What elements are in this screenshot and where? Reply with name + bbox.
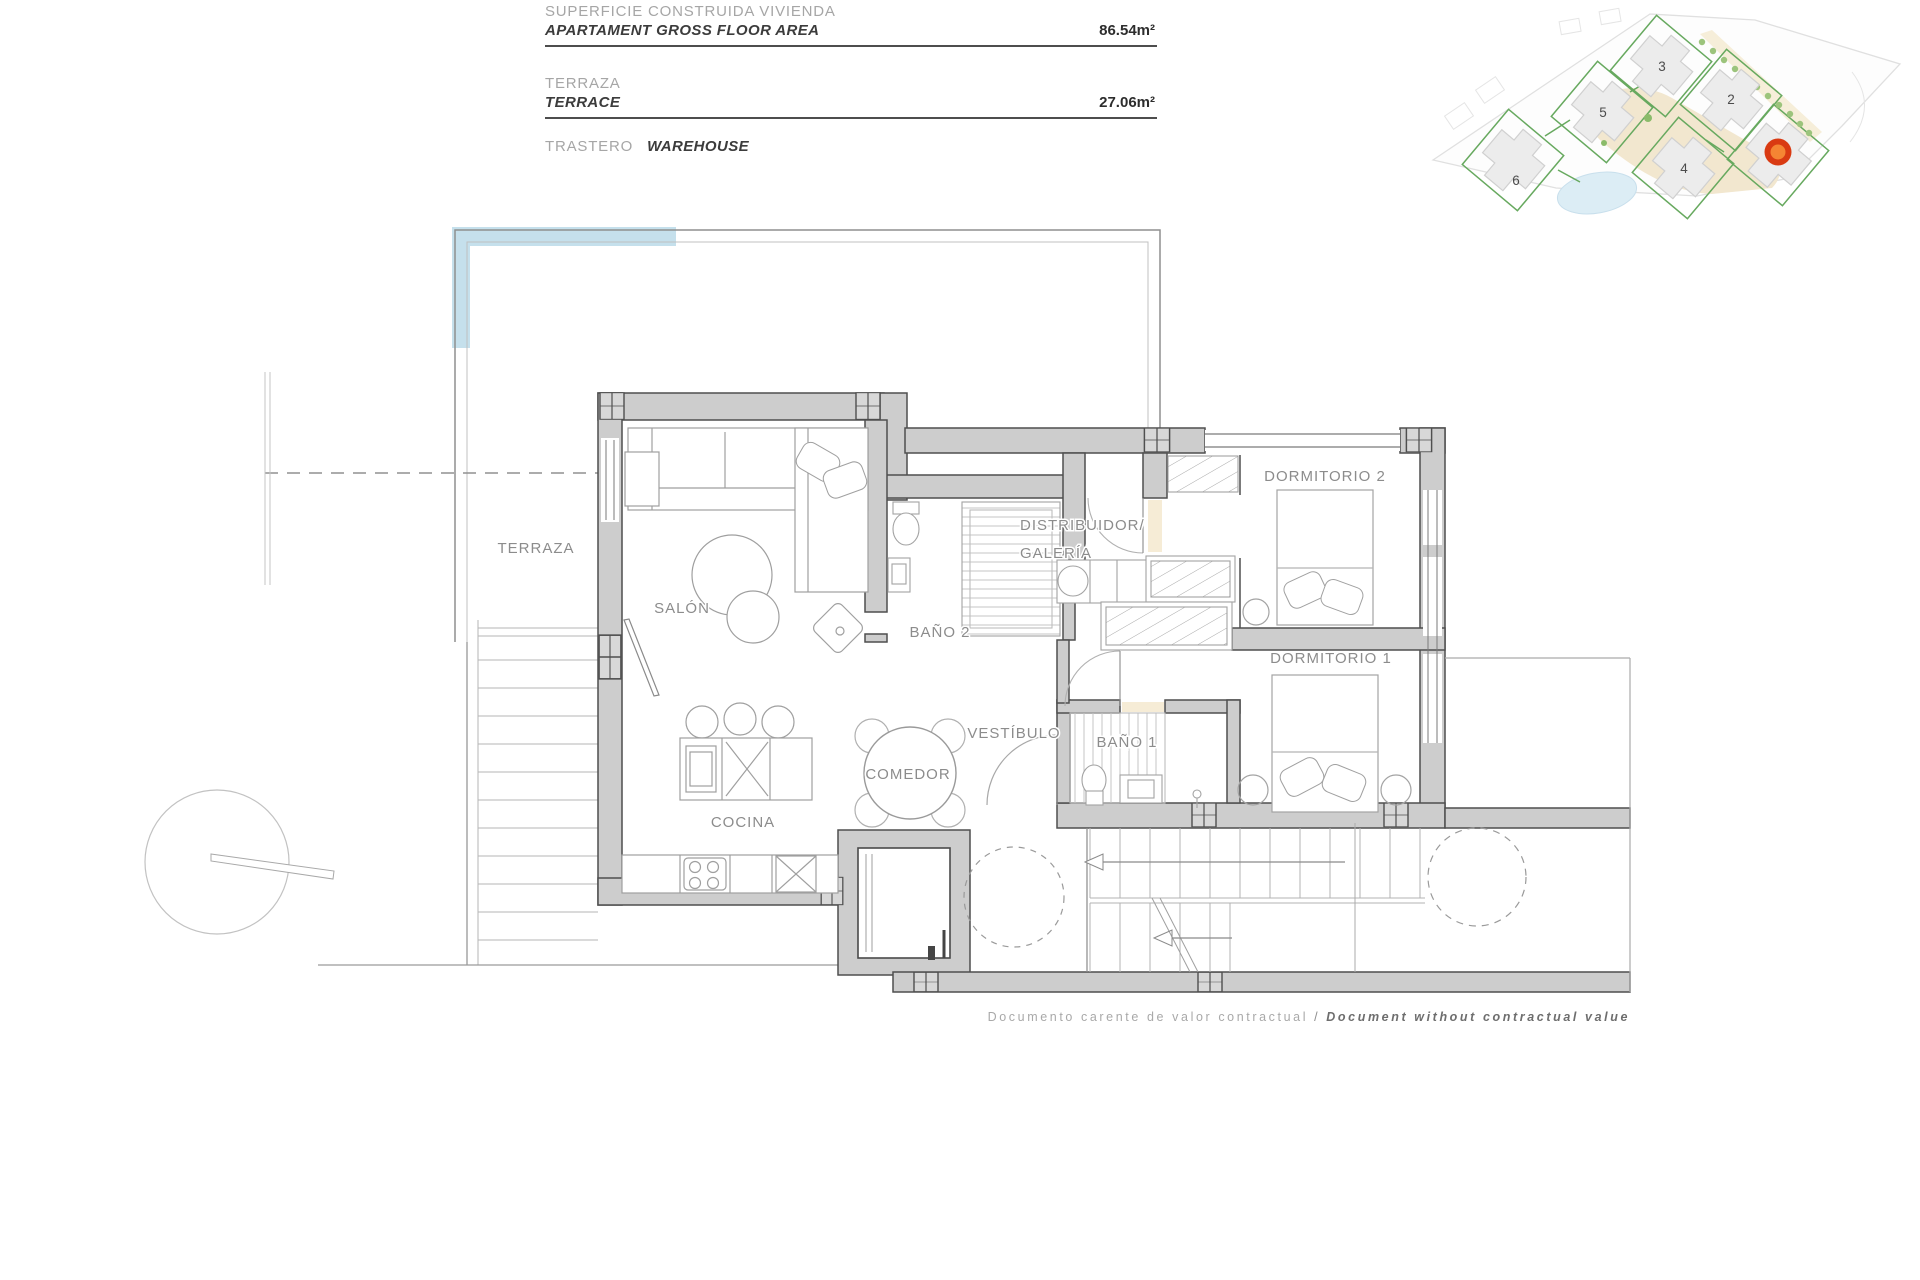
salon (624, 428, 869, 696)
exterior-stairs (467, 620, 598, 965)
plot-number-6: 6 (1512, 173, 1520, 188)
bathroom-1 (1065, 651, 1201, 808)
room-label-cocina: COCINA (711, 814, 775, 831)
room-label-dormitorio1: DORMITORIO 1 (1270, 650, 1392, 667)
floor-plan-page: SUPERFICIE CONSTRUIDA VIVIENDA APARTAMEN… (0, 0, 1920, 1280)
bedroom-1 (1238, 675, 1411, 812)
elevator (858, 848, 950, 960)
tree (145, 790, 334, 934)
plot-number-5: 5 (1599, 105, 1607, 120)
room-label-dormitorio2: DORMITORIO 2 (1264, 468, 1386, 485)
door-tint (1148, 500, 1162, 552)
room-label-terraza: TERRAZA (497, 540, 574, 557)
plot-number-4: 4 (1680, 161, 1688, 176)
terrace-blue-highlight (452, 227, 676, 348)
room-label-salon: SALÓN (654, 600, 710, 617)
door-tint (1122, 702, 1164, 712)
room-label-galeria: GALERÍA (1020, 545, 1092, 562)
plan-drawing: 6 5 3 2 4 TERRAZA (0, 0, 1920, 1280)
plot-number-2: 2 (1727, 92, 1735, 107)
vestibulo (964, 735, 1064, 947)
room-label-bano1: BAÑO 1 (1096, 734, 1157, 751)
you-are-here-marker (1765, 139, 1792, 166)
site-map: 6 5 3 2 4 (1433, 8, 1900, 219)
room-label-vestibulo: VESTÍBULO (967, 725, 1060, 742)
room-label-distribuidor: DISTRIBUIDOR/ (1020, 517, 1145, 534)
room-label-comedor: COMEDOR (865, 766, 950, 783)
room-label-bano2: BAÑO 2 (909, 624, 970, 641)
plot-number-3: 3 (1658, 59, 1666, 74)
kitchen (622, 703, 838, 893)
wardrobe (1168, 456, 1238, 492)
